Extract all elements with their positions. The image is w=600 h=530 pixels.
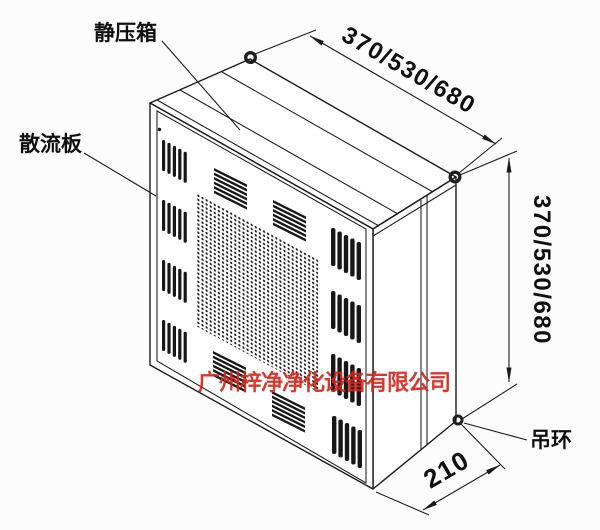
label-lifting-ring: 吊环: [530, 428, 572, 452]
dimension-text-top: 370/530/680: [337, 21, 480, 119]
plenum-side-face: [373, 177, 456, 489]
label-diffuser-plate: 散流板: [19, 132, 83, 156]
dimension-side-height: 370/530/680: [460, 151, 555, 419]
dimension-text-depth: 210: [418, 444, 474, 494]
drawing-canvas: 370/530/680 370/530/680 210 静压箱 散流板 吊环 广…: [0, 0, 600, 530]
lifting-ring-top-left: [246, 53, 256, 63]
panel-screw: [158, 128, 161, 131]
label-plenum-box: 静压箱: [94, 21, 157, 45]
dimension-text-side: 370/530/680: [528, 195, 555, 345]
technical-drawing: 370/530/680 370/530/680 210 静压箱 散流板 吊环 广…: [0, 0, 600, 530]
watermark-text: 广州梓净净化设备有限公司: [198, 370, 450, 396]
lifting-ring-bottom: [454, 416, 462, 424]
